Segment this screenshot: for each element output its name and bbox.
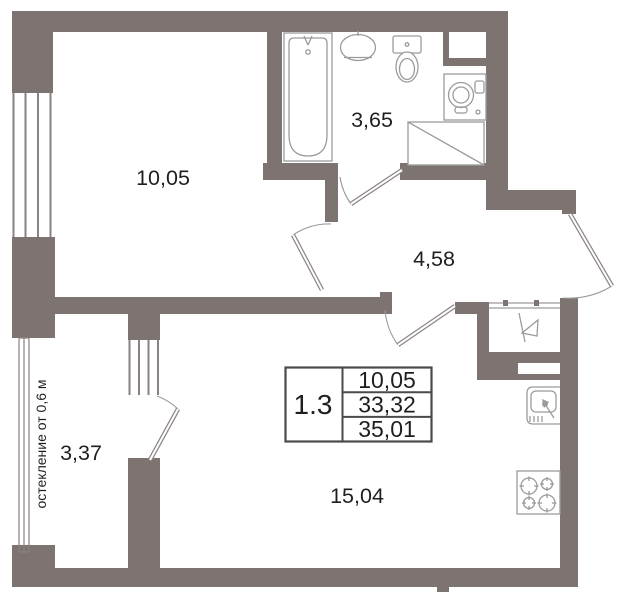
wall-living-door-jamb: [380, 292, 392, 314]
wall-niche-bottom: [443, 58, 486, 66]
living-room-door: [385, 306, 455, 345]
balcony-door-arc: [157, 396, 178, 409]
wall-balcony-right-upper: [128, 297, 160, 340]
wall-bathroom-left: [267, 32, 282, 163]
sink-icon: [341, 31, 376, 61]
shower-tray-icon: [408, 122, 484, 165]
stove-icon: [517, 471, 560, 514]
room-label-hallway: 4,58: [413, 247, 455, 271]
living-room-door-arc: [385, 310, 398, 345]
room-label-bedroom: 10,05: [136, 166, 190, 190]
wall-entry-jamb: [562, 198, 576, 214]
wall-bedroom-bottom: [12, 297, 382, 314]
entrance-door-arc: [563, 286, 612, 298]
wall-right-upper: [486, 11, 508, 210]
stamp-living-area: 10,05: [358, 367, 416, 393]
bathroom-door: [340, 170, 402, 204]
room-label-bathroom: 3,65: [351, 108, 393, 132]
stamp-total-area: 35,01: [358, 416, 416, 442]
balcony-window-icon: [130, 340, 159, 395]
stamp-unit-number: 1.3: [294, 389, 333, 420]
wall-closet-bottom-block: [477, 352, 518, 380]
balcony-glazing-icon: [19, 338, 29, 552]
kitchen-sink-icon: [527, 387, 560, 424]
bedroom-door: [293, 224, 331, 290]
glazing-note: остекление от 0,6 м: [33, 379, 49, 508]
stamp-area: 33,32: [358, 392, 416, 418]
washing-machine-icon: [444, 74, 486, 120]
wall-duct-strip-top: [518, 352, 560, 363]
wall-bedroom-nook: [325, 163, 338, 222]
bathtub-icon: [284, 33, 332, 161]
wall-bottom: [55, 568, 578, 587]
wall-top: [12, 11, 508, 32]
room-label-living-kitchen: 15,04: [330, 484, 384, 508]
wall-duct-strip-bottom: [518, 374, 560, 380]
entrance-door: [563, 214, 612, 298]
wall-left-upper-block: [12, 11, 53, 93]
toilet-icon: [393, 36, 421, 82]
bedroom-window-icon: [14, 93, 51, 237]
closet-hanger-icon: [489, 300, 560, 342]
wall-left-mid-block: [12, 237, 55, 338]
room-label-balcony: 3,37: [60, 441, 102, 465]
wall-living-right: [560, 298, 578, 570]
floor-plan: 10,05 3,65 4,58 3,37 15,04 остекление от…: [0, 0, 636, 600]
area-stamp-table: 1.3 10,05 33,32 35,01: [286, 367, 432, 442]
bathroom-door-arc: [340, 177, 351, 204]
balcony-door: [150, 396, 178, 460]
wall-balcony-right-lower: [128, 458, 160, 570]
bedroom-door-arc: [293, 224, 331, 235]
wall-bottom-nub: [437, 586, 449, 592]
